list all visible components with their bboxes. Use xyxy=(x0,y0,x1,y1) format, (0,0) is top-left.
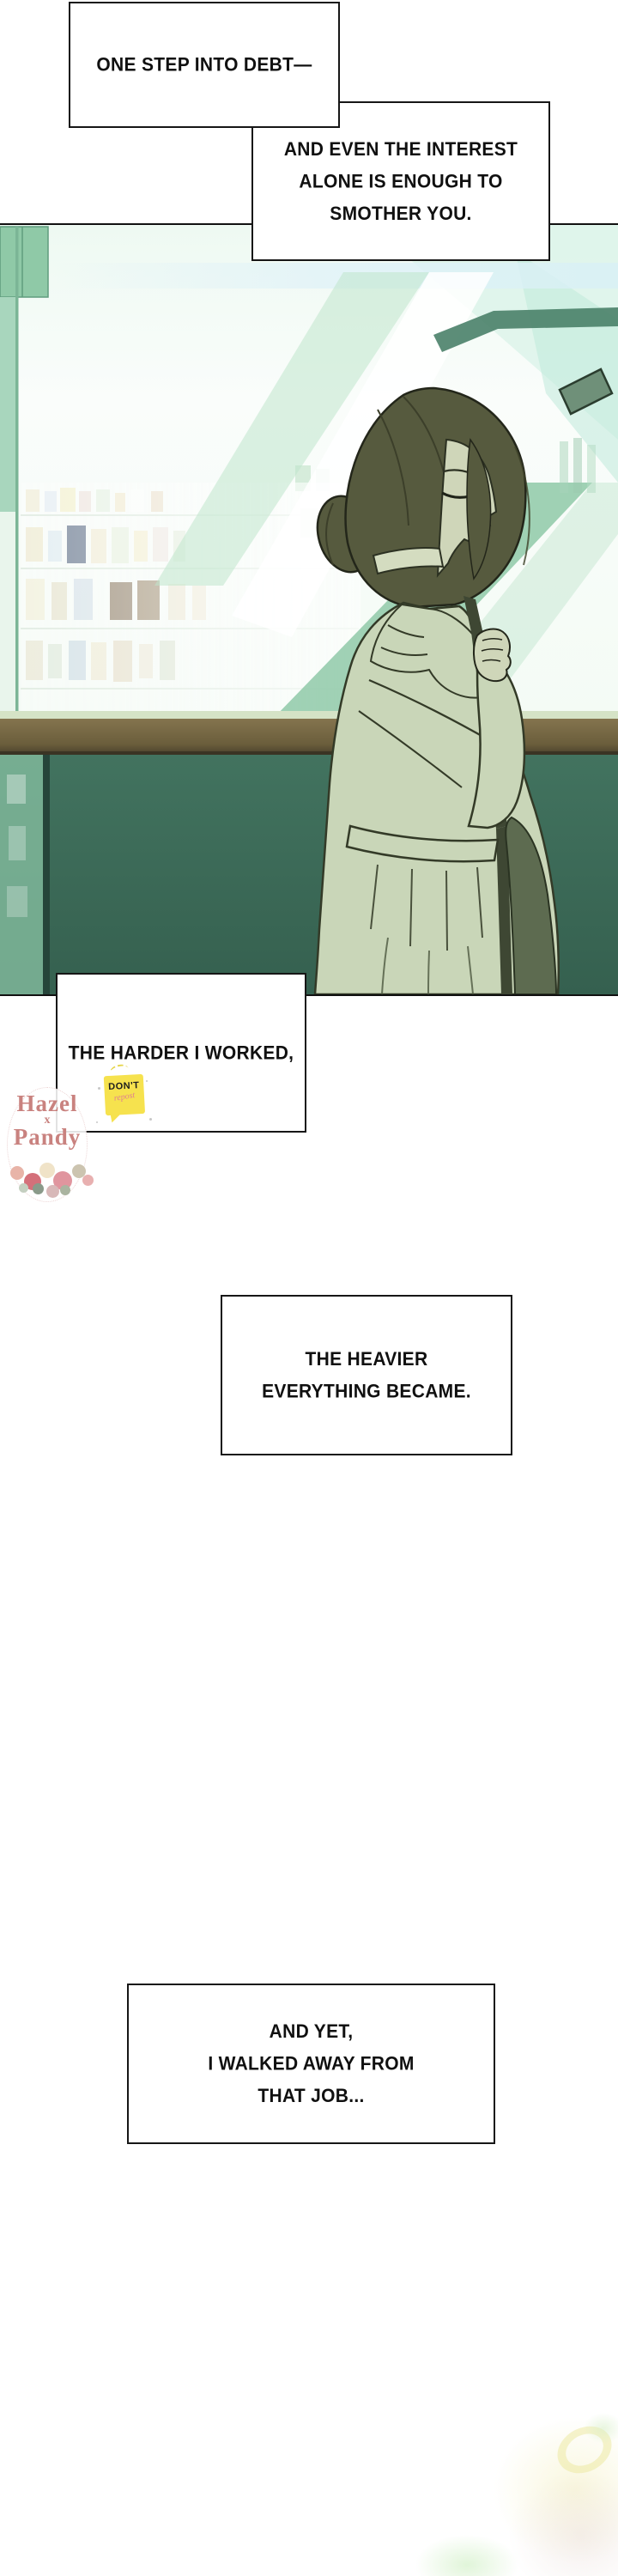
sticker-dot xyxy=(96,1121,98,1123)
ghost-art-green-blob xyxy=(415,2535,518,2576)
sticker-tail xyxy=(109,1113,121,1124)
watermark-word-3: Pandy xyxy=(0,1126,94,1148)
watermark-text: Hazel x Pandy xyxy=(0,1092,94,1148)
narration-text-3: THE HARDER I WORKED, xyxy=(69,1036,294,1068)
comic-page: ONE STEP INTO DEBT— AND EVEN THE INTERES… xyxy=(0,0,618,2576)
sticker-dot xyxy=(98,1087,100,1090)
background-shelf-hints xyxy=(560,438,596,493)
illustration-panel xyxy=(0,223,618,996)
sticker-dot xyxy=(149,1118,152,1121)
narration-box-1: ONE STEP INTO DEBT— xyxy=(69,2,340,128)
narration-text-2: AND EVEN THE INTEREST ALONE IS ENOUGH TO… xyxy=(284,133,518,229)
narration-box-5: AND YET, I WALKED AWAY FROM THAT JOB... xyxy=(127,1984,495,2144)
dont-repost-sticker: DON'T repost xyxy=(104,1074,148,1119)
narration-text-1: ONE STEP INTO DEBT— xyxy=(96,49,312,81)
store-scene-art xyxy=(0,225,618,994)
watermark-word-1: Hazel xyxy=(0,1092,94,1115)
door-lower xyxy=(0,755,50,994)
hand xyxy=(474,629,511,682)
narration-text-4: THE HEAVIER EVERYTHING BECAME. xyxy=(262,1343,471,1407)
sticker-bubble: DON'T repost xyxy=(104,1074,145,1115)
watermark-flowers xyxy=(3,1154,94,1200)
narration-text-5: AND YET, I WALKED AWAY FROM THAT JOB... xyxy=(208,2015,414,2111)
narration-box-4: THE HEAVIER EVERYTHING BECAME. xyxy=(221,1295,512,1455)
ghost-art-green-spot xyxy=(584,2413,618,2444)
sticker-dot xyxy=(146,1080,148,1082)
